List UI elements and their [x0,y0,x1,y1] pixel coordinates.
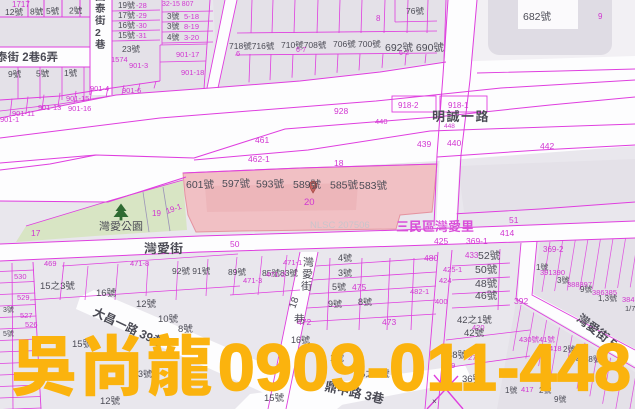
svg-text:3: 3 [338,268,343,278]
svg-text:901-13: 901-13 [38,103,61,112]
svg-text:529: 529 [17,293,30,302]
svg-text:901-6: 901-6 [122,86,141,95]
svg-text:6: 6 [236,49,240,58]
svg-text:91: 91 [192,266,202,276]
svg-text:12: 12 [5,7,15,17]
svg-text:1,3: 1,3 [598,294,610,303]
svg-text:706: 706 [333,39,347,49]
svg-text:6-7: 6-7 [296,47,306,54]
svg-text:480: 480 [424,253,438,263]
svg-text:50: 50 [230,239,240,249]
svg-text:42: 42 [457,315,468,326]
svg-text:76: 76 [406,6,416,16]
svg-text:NLSC: NLSC [310,220,335,231]
svg-text:918-1: 918-1 [448,101,469,110]
svg-text:5: 5 [46,6,51,16]
svg-text:384: 384 [622,295,635,304]
svg-text:369-1: 369-1 [466,236,488,246]
svg-text:690: 690 [416,42,434,54]
svg-text:19: 19 [118,1,127,10]
svg-text:928: 928 [334,106,348,116]
svg-text:710: 710 [281,40,295,50]
svg-text:901-18: 901-18 [181,68,204,77]
svg-text:1574: 1574 [111,55,128,64]
svg-text:1717: 1717 [12,0,30,9]
svg-text:807: 807 [182,1,194,8]
svg-text:-31: -31 [136,31,147,40]
svg-text:50: 50 [475,264,487,276]
svg-text:8: 8 [358,297,363,307]
svg-text:89: 89 [228,267,238,277]
svg-text:3: 3 [167,22,172,31]
svg-text:3: 3 [138,369,143,379]
svg-text:3: 3 [60,281,65,292]
svg-text:-29: -29 [136,11,147,20]
svg-text:414: 414 [500,228,514,238]
svg-text:400: 400 [435,297,448,306]
svg-text:8: 8 [30,7,35,17]
svg-text:15: 15 [72,339,83,350]
svg-text:439: 439 [417,139,431,149]
svg-text:425-1: 425-1 [443,265,462,274]
svg-text:471-8: 471-8 [130,259,149,268]
svg-text:593: 593 [256,179,274,191]
svg-text:32-15: 32-15 [162,1,180,8]
svg-text:601: 601 [186,179,204,191]
svg-text:530: 530 [14,272,27,281]
svg-text:8-19: 8-19 [184,22,199,31]
svg-text:15: 15 [40,281,51,292]
svg-text:425: 425 [434,236,448,246]
svg-text:424: 424 [439,276,452,285]
svg-text:526: 526 [25,320,38,329]
svg-text:475: 475 [352,282,366,292]
svg-text:1: 1 [64,68,69,78]
svg-text:583: 583 [359,180,377,192]
svg-text:433: 433 [465,251,479,260]
svg-text:5: 5 [36,69,41,79]
svg-text:9: 9 [8,69,13,79]
svg-text:12: 12 [136,299,147,310]
svg-text:901-3: 901-3 [129,61,148,70]
svg-text:472: 472 [297,317,311,327]
svg-text:440: 440 [447,138,461,148]
svg-text:3: 3 [3,307,7,314]
svg-text:17: 17 [31,228,41,238]
svg-text:527: 527 [20,311,33,320]
svg-text:482-1: 482-1 [410,287,429,296]
svg-text:4: 4 [338,253,343,263]
svg-text:5-18: 5-18 [184,12,199,21]
svg-text:5: 5 [332,282,337,292]
svg-text:8: 8 [178,324,183,335]
svg-text:6: 6 [40,52,46,64]
svg-text:473: 473 [382,317,396,327]
svg-text:207506: 207506 [338,220,370,231]
svg-text:-30: -30 [136,21,147,30]
svg-text:716: 716 [252,41,266,51]
svg-text:440: 440 [375,117,388,126]
svg-text:471-2: 471-2 [266,270,285,279]
svg-text:16: 16 [118,21,127,30]
svg-text:12: 12 [100,396,111,407]
svg-text:8: 8 [376,14,381,23]
svg-text:52: 52 [478,250,490,262]
svg-text:392: 392 [514,296,528,306]
svg-text:3-20: 3-20 [184,33,199,42]
svg-text:9: 9 [580,285,585,294]
svg-text:48: 48 [475,278,487,290]
svg-text:92: 92 [172,266,182,276]
svg-text:46: 46 [475,290,487,302]
svg-text:0909-011-448: 0909-011-448 [218,330,631,404]
svg-text:2: 2 [95,27,101,39]
svg-text:471-3: 471-3 [243,276,262,285]
svg-text:901-16: 901-16 [68,104,91,113]
svg-text:448: 448 [444,123,455,130]
svg-text:3: 3 [557,276,562,285]
svg-text:5: 5 [3,331,7,338]
svg-text:19: 19 [152,209,161,218]
svg-text:16: 16 [96,288,107,299]
svg-text:-28: -28 [136,1,147,10]
svg-text:9: 9 [598,12,603,21]
svg-text:4: 4 [167,33,172,42]
svg-text:18: 18 [334,158,344,168]
svg-text:918-2: 918-2 [398,101,419,110]
svg-text:6-2: 6-2 [399,50,409,57]
svg-text:17: 17 [118,11,127,20]
svg-text:369-2: 369-2 [543,245,564,254]
svg-text:3: 3 [167,12,172,21]
svg-text:682: 682 [523,11,541,23]
svg-text:15: 15 [118,31,127,40]
svg-text:901-1: 901-1 [0,115,19,124]
svg-text:23: 23 [122,44,132,54]
svg-text:1/7: 1/7 [625,304,635,313]
svg-text:2: 2 [69,6,74,16]
svg-text:442: 442 [540,141,554,151]
svg-text:471-1: 471-1 [283,258,302,267]
svg-text:901-15: 901-15 [66,94,89,103]
svg-text:2: 2 [22,52,28,64]
svg-text:462-1: 462-1 [248,154,270,164]
svg-text:20: 20 [304,197,315,208]
svg-text:461: 461 [255,135,269,145]
svg-text:589: 589 [293,179,311,191]
svg-text:700: 700 [358,39,372,49]
svg-text:585: 585 [330,180,348,192]
svg-text:469: 469 [44,259,57,268]
svg-text:10: 10 [158,314,169,325]
svg-text:597: 597 [222,178,240,190]
svg-text:901-17: 901-17 [176,50,199,59]
svg-text:51: 51 [509,215,519,225]
svg-text:9: 9 [328,299,333,309]
svg-text:901-4: 901-4 [90,84,109,93]
